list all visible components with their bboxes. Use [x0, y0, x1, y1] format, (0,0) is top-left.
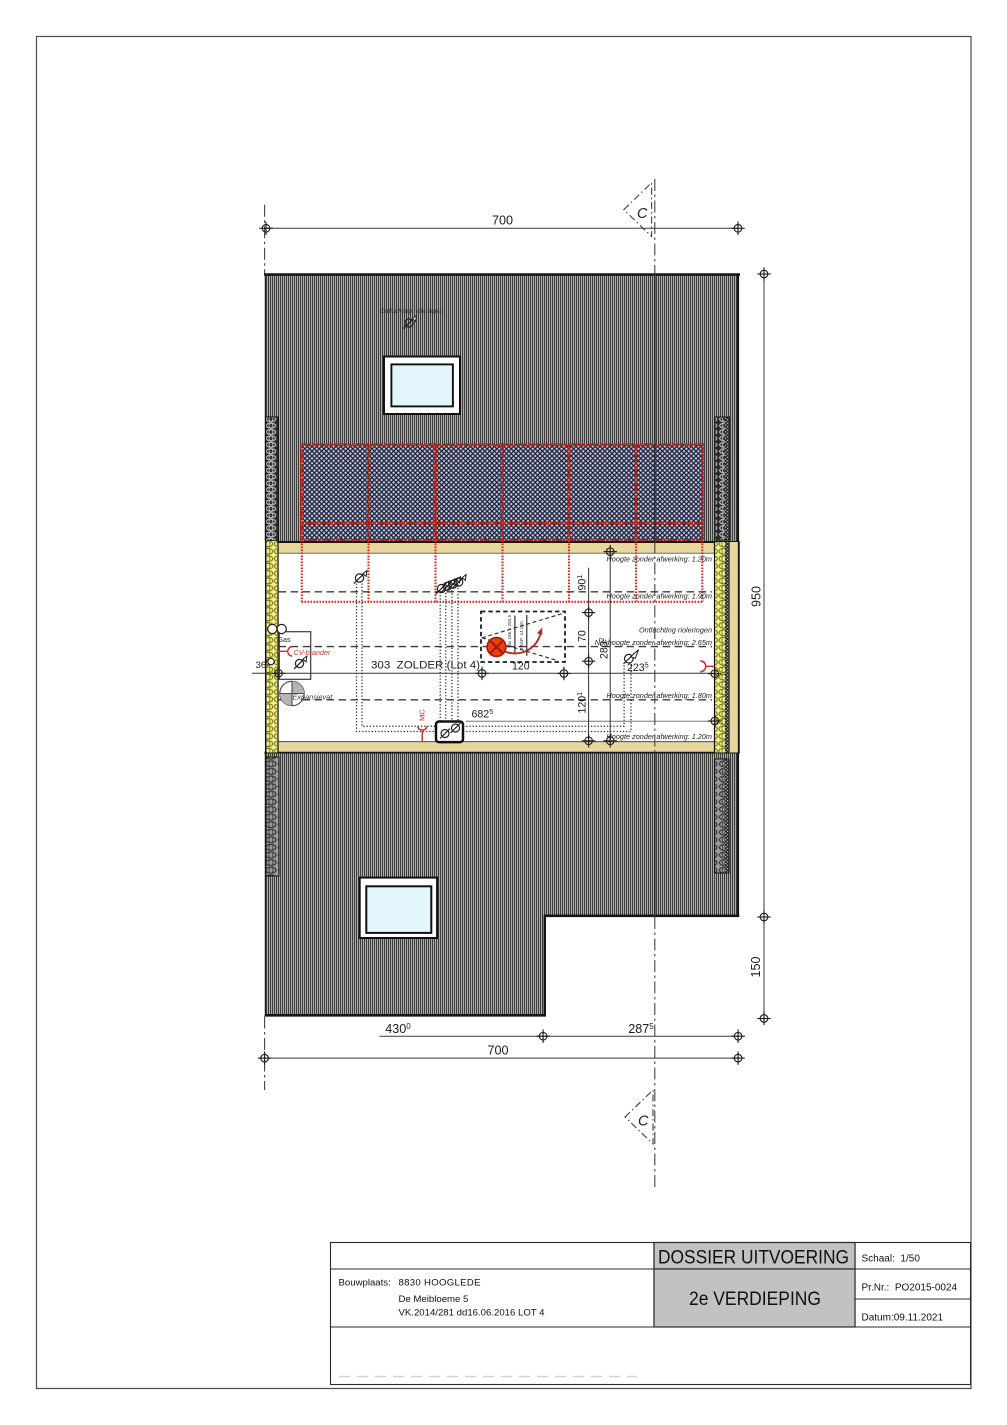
svg-text:C: C [637, 206, 648, 222]
svg-text:Ontluchting rioleringen: Ontluchting rioleringen [380, 308, 444, 315]
svg-text:MC: MC [418, 709, 427, 721]
svg-text:950: 950 [750, 586, 764, 607]
svg-text:Bouwplaats:: Bouwplaats: [339, 1278, 391, 1289]
svg-text:CV-brander: CV-brander [294, 648, 331, 657]
svg-text:120: 120 [512, 660, 530, 672]
svg-text:700: 700 [492, 214, 513, 228]
svg-text:Datum:09.11.2021: Datum:09.11.2021 [862, 1313, 944, 1324]
svg-text:700: 700 [487, 1044, 508, 1058]
svg-text:De Meibloeme 5: De Meibloeme 5 [399, 1294, 469, 1305]
svg-text:Hoogte zonder afwerking: 1.20m: Hoogte zonder afwerking: 1.20m [607, 732, 712, 741]
svg-text:Hoogte zonder afwerking: 1.90m: Hoogte zonder afwerking: 1.90m [607, 592, 712, 601]
svg-text:150: 150 [749, 956, 763, 977]
svg-text:Hoogte zonder afwerking: 1.80m: Hoogte zonder afwerking: 1.80m [607, 691, 712, 700]
svg-text:Pr.Nr.: PO2015-0024: Pr.Nr.: PO2015-0024 [862, 1283, 958, 1294]
svg-text:Gas: Gas [278, 636, 291, 644]
svg-text:C: C [638, 1114, 649, 1130]
svg-text:Expansievat: Expansievat [293, 693, 334, 702]
svg-text:TRAP: 14 optr.: TRAP: 14 optr. [519, 620, 524, 650]
svg-text:VK.2014/281 dd16.06.2016 LOT 4: VK.2014/281 dd16.06.2016 LOT 4 [399, 1308, 546, 1319]
svg-text:Hoogte zonder afwerking: 1.20m: Hoogte zonder afwerking: 1.20m [607, 555, 712, 564]
svg-text:8830 HOOGLEDE: 8830 HOOGLEDE [399, 1278, 481, 1289]
svg-text:14x 186 = 260,5: 14x 186 = 260,5 [507, 614, 512, 648]
svg-text:DOSSIER UITVOERING: DOSSIER UITVOERING [658, 1247, 849, 1269]
svg-text:Schaal: 1/50: Schaal: 1/50 [862, 1254, 921, 1265]
svg-text:70: 70 [577, 630, 589, 642]
svg-text:2e VERDIEPING: 2e VERDIEPING [689, 1288, 821, 1310]
svg-text:Ontluchting rioleringen: Ontluchting rioleringen [639, 626, 712, 635]
svg-text:303 ZOLDER (Lot 4): 303 ZOLDER (Lot 4) [371, 660, 480, 672]
svg-text:Nokhoogte zonder afwerking: 2.: Nokhoogte zonder afwerking: 2.65m [595, 638, 712, 647]
